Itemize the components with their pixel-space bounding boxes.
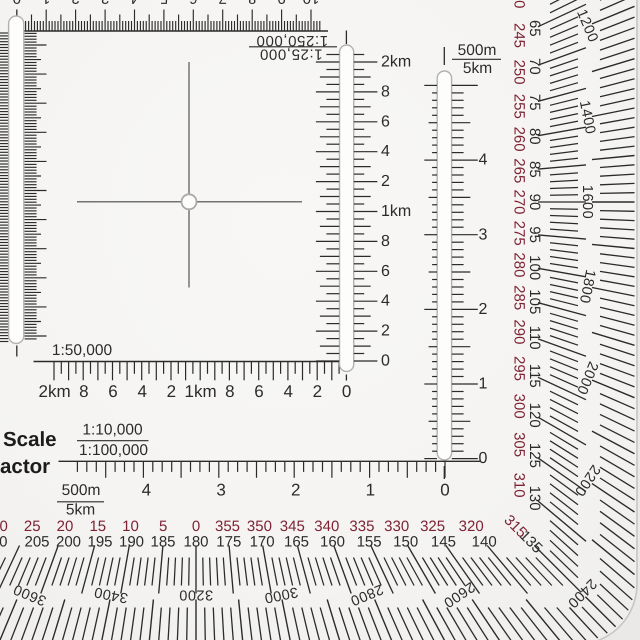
svg-text:8: 8 [381,233,390,250]
svg-text:300: 300 [511,394,528,419]
svg-text:1600: 1600 [579,185,595,219]
svg-text:1:100,000: 1:100,000 [79,442,148,459]
svg-text:3: 3 [101,0,109,7]
svg-text:0: 0 [342,382,351,401]
svg-text:8: 8 [248,0,256,7]
svg-text:Scale: Scale [3,428,57,451]
svg-text:245: 245 [511,23,528,48]
svg-text:500m: 500m [62,482,101,499]
svg-text:4: 4 [381,143,390,160]
svg-text:305: 305 [511,432,528,457]
svg-text:2: 2 [71,0,79,7]
svg-text:240: 240 [511,0,528,8]
svg-text:130: 130 [526,486,543,511]
svg-text:2km: 2km [39,382,71,401]
svg-text:5km: 5km [463,60,492,77]
svg-text:3200: 3200 [179,587,213,603]
svg-text:120: 120 [526,403,543,428]
svg-text:25: 25 [24,518,41,535]
svg-text:95: 95 [526,226,543,243]
svg-text:4: 4 [479,152,488,169]
svg-text:1: 1 [366,481,375,500]
svg-text:6: 6 [108,382,117,401]
svg-text:3: 3 [479,226,488,243]
svg-text:200: 200 [56,534,81,551]
svg-text:2km: 2km [381,54,411,71]
svg-text:165: 165 [284,534,309,551]
svg-text:100: 100 [526,255,543,280]
svg-text:4: 4 [381,293,390,310]
svg-text:5: 5 [159,518,167,535]
svg-text:3: 3 [216,481,225,500]
svg-text:0: 0 [381,353,390,370]
svg-text:1km: 1km [185,382,217,401]
svg-text:335: 335 [349,518,374,535]
svg-text:15: 15 [89,518,106,535]
svg-text:4: 4 [130,0,138,7]
svg-text:0: 0 [192,518,200,535]
svg-text:2: 2 [381,173,390,190]
svg-text:70: 70 [526,58,543,75]
svg-text:5: 5 [160,0,168,7]
svg-text:80: 80 [526,128,543,145]
svg-text:0: 0 [440,481,449,500]
svg-text:4: 4 [283,382,292,401]
svg-text:110: 110 [526,326,543,350]
svg-text:290: 290 [511,319,528,344]
svg-text:65: 65 [526,20,543,37]
svg-text:2: 2 [313,382,322,401]
svg-text:2: 2 [479,301,488,318]
svg-text:350: 350 [247,518,272,535]
svg-text:9: 9 [277,0,285,7]
svg-text:190: 190 [119,534,144,551]
svg-text:2: 2 [291,481,300,500]
svg-text:6: 6 [189,0,197,7]
svg-text:1km: 1km [381,203,411,220]
svg-text:140: 140 [472,534,497,551]
svg-text:4: 4 [142,481,151,500]
svg-text:325: 325 [420,518,445,535]
svg-text:125: 125 [526,443,543,468]
svg-text:2: 2 [381,323,390,340]
svg-text:0: 0 [479,450,488,467]
svg-text:2: 2 [167,382,176,401]
svg-text:340: 340 [314,518,339,535]
svg-text:210: 210 [0,534,8,551]
svg-text:250: 250 [511,60,528,85]
svg-text:185: 185 [150,534,175,551]
svg-text:175: 175 [216,534,241,551]
svg-text:500m: 500m [458,42,497,59]
svg-text:180: 180 [183,534,208,551]
svg-text:75: 75 [526,94,543,111]
svg-text:330: 330 [384,518,409,535]
svg-text:150: 150 [393,534,418,551]
svg-text:295: 295 [511,356,528,381]
svg-text:10: 10 [122,518,139,535]
svg-text:310: 310 [511,473,528,498]
svg-text:1: 1 [479,376,488,393]
svg-text:255: 255 [511,94,528,119]
svg-text:270: 270 [511,189,528,214]
svg-text:105: 105 [526,289,543,314]
svg-text:160: 160 [320,534,345,551]
svg-text:265: 265 [511,158,528,183]
svg-text:10: 10 [303,0,320,7]
svg-text:8: 8 [79,382,88,401]
svg-text:0: 0 [13,0,21,7]
svg-text:85: 85 [526,161,543,178]
svg-text:4: 4 [137,382,146,401]
svg-text:1: 1 [42,0,50,7]
svg-text:1:50,000: 1:50,000 [52,342,113,359]
svg-text:20: 20 [57,518,74,535]
svg-text:5km: 5km [66,502,95,519]
svg-text:170: 170 [250,534,275,551]
svg-text:6: 6 [381,263,390,280]
svg-text:Factor: Factor [0,455,50,478]
svg-text:320: 320 [459,518,484,535]
svg-text:1:25,000: 1:25,000 [259,46,322,63]
svg-text:8: 8 [381,83,390,100]
svg-text:345: 345 [280,518,305,535]
svg-text:155: 155 [357,534,382,551]
svg-text:285: 285 [511,285,528,310]
svg-text:195: 195 [87,534,112,551]
svg-text:30: 30 [0,518,8,535]
svg-text:145: 145 [431,534,456,551]
svg-text:355: 355 [215,518,240,535]
svg-text:8: 8 [225,382,234,401]
svg-text:280: 280 [511,252,528,277]
svg-text:1:10,000: 1:10,000 [82,421,143,438]
svg-text:205: 205 [24,534,49,551]
svg-text:115: 115 [526,364,543,388]
svg-text:275: 275 [511,221,528,246]
svg-text:7: 7 [219,0,227,7]
svg-text:6: 6 [381,113,390,130]
svg-text:6: 6 [254,382,263,401]
svg-text:90: 90 [526,194,543,211]
svg-text:260: 260 [511,127,528,152]
